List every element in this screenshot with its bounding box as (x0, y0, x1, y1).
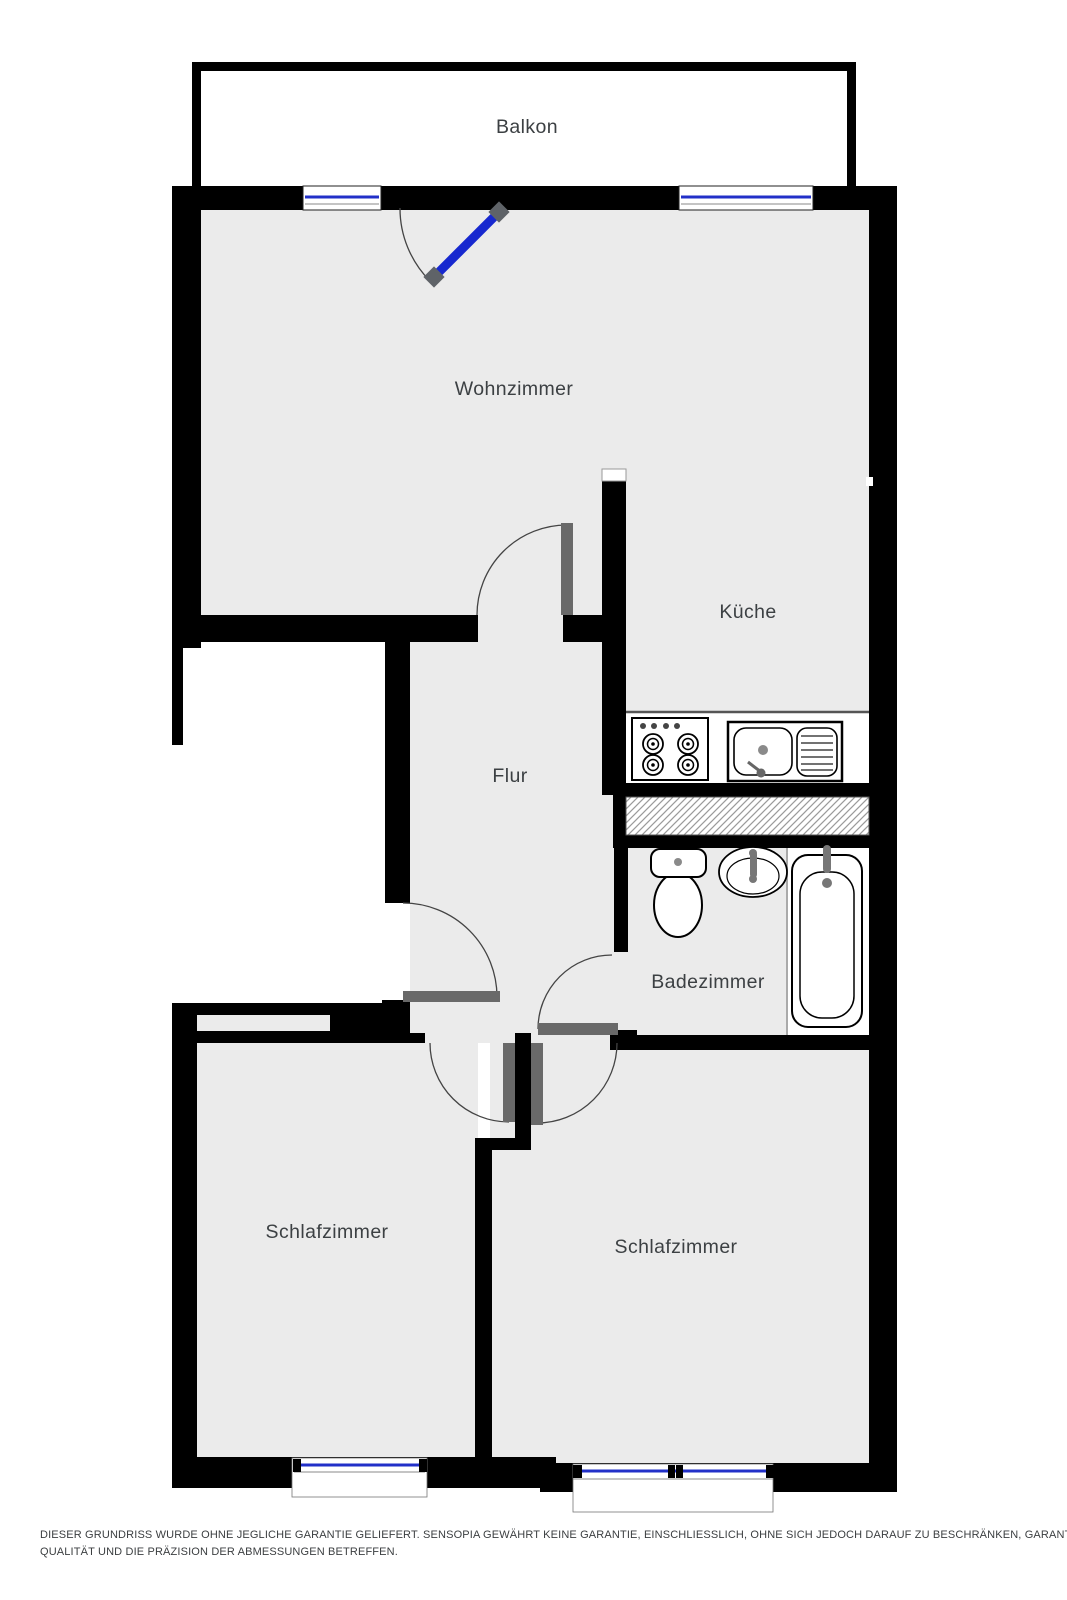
entry-door-threshold (385, 903, 410, 1000)
label-schlafzimmer-links: Schlafzimmer (266, 1221, 389, 1243)
balcony-wall-right (847, 62, 856, 187)
wall-bedroom-left-top-inner (197, 1031, 330, 1043)
bedroom-left-door-leaf (503, 1043, 515, 1122)
balcony-wall-left (192, 62, 201, 187)
wall-door-stub-between-bedrooms (515, 1033, 531, 1150)
wall-livingroom-south (172, 615, 478, 642)
hallway-floor (410, 642, 614, 1043)
stove-icon (632, 718, 708, 780)
bathroom-door-leaf (538, 1023, 618, 1035)
wall-bedroom-left-top (330, 1015, 410, 1043)
shaft-hatched-area (626, 797, 869, 835)
disclaimer: DIESER GRUNDRISS WURDE OHNE JEGLICHE GAR… (40, 1527, 1060, 1561)
washbasin-icon (719, 847, 787, 897)
floorplan-image: Balkon Wohnzimmer Küche Flur Badezimmer … (0, 0, 1067, 1600)
bathtub-icon (792, 845, 862, 1027)
living-room-door-leaf (561, 523, 573, 615)
entry-door-leaf (403, 991, 500, 1002)
label-wohnzimmer: Wohnzimmer (455, 378, 574, 400)
wall-bathroom-south (612, 1035, 897, 1050)
kitchen-floor (626, 480, 869, 713)
toilet-icon (651, 849, 706, 937)
window-bedroom-right (573, 1464, 775, 1512)
floorplan-page: Balkon Wohnzimmer Küche Flur Badezimmer … (0, 0, 1067, 1600)
wall-left-stub (172, 642, 183, 745)
label-badezimmer: Badezimmer (651, 971, 765, 993)
wall-end-cap (602, 469, 626, 481)
wall-livingroom-door-stub (563, 615, 602, 642)
window-bedroom-left (292, 1458, 427, 1497)
wall-bedroom-left-west (172, 1003, 197, 1488)
wall-bedroom-left-top-outer (172, 1003, 410, 1015)
label-balkon: Balkon (496, 116, 558, 138)
label-kueche: Küche (719, 601, 776, 623)
wall-bathroom-west (614, 848, 628, 952)
disclaimer-line-2: QUALITÄT UND DIE PRÄZISION DER ABMESSUNG… (40, 1544, 1060, 1561)
bedroom-right-door-leaf (531, 1043, 543, 1125)
bathroom-door-opening (614, 952, 628, 1030)
wall-kitchen-divider (602, 481, 626, 795)
wall-bedroom-left-door-sliver (410, 1033, 425, 1043)
wall-hallway-left (385, 642, 410, 903)
bedroom-left-door-opening (425, 1033, 503, 1043)
wall-bathroom-top (613, 835, 897, 848)
wall-shaft-left (613, 795, 626, 837)
wall-counter-bottom (613, 781, 897, 797)
window-livingroom-left (303, 186, 381, 210)
kitchen-counter (626, 712, 869, 783)
wall-left-upper (172, 186, 201, 648)
wall-bedroom-divider (475, 1138, 492, 1462)
label-schlafzimmer-rechts: Schlafzimmer (615, 1236, 738, 1258)
window-livingroom-right (679, 186, 813, 210)
label-flur: Flur (492, 765, 527, 787)
wall-notch (866, 477, 873, 486)
living-room-door-opening (473, 615, 563, 642)
balcony-wall-top (192, 62, 856, 71)
disclaimer-line-1: DIESER GRUNDRISS WURDE OHNE JEGLICHE GAR… (40, 1527, 1060, 1544)
kitchen-sink-icon (728, 722, 842, 781)
